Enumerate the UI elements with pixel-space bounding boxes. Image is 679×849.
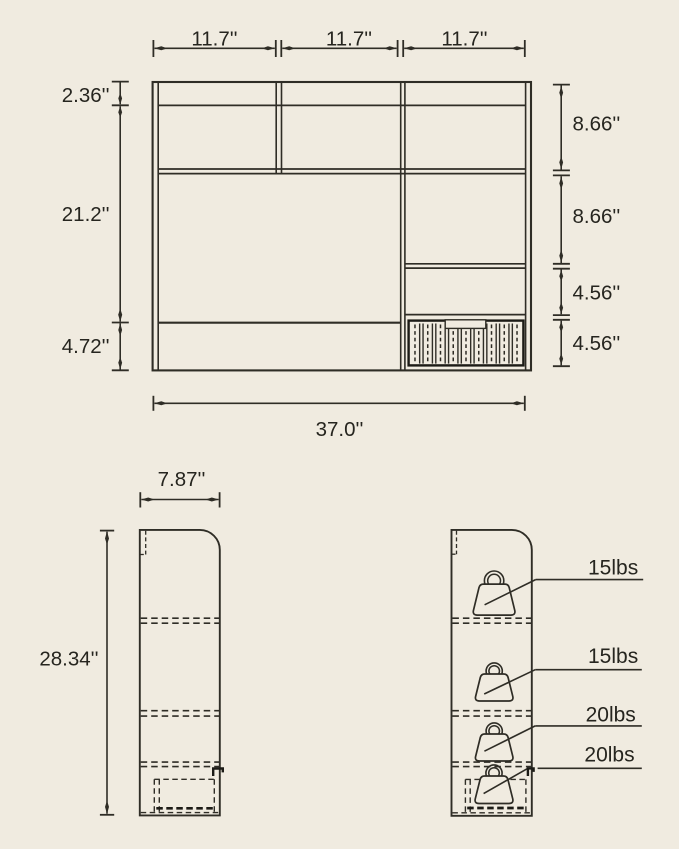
svg-text:2.36'': 2.36'' xyxy=(62,84,110,107)
svg-text:4.56'': 4.56'' xyxy=(573,332,621,355)
svg-text:11.7'': 11.7'' xyxy=(441,27,487,50)
svg-text:28.34'': 28.34'' xyxy=(39,648,98,671)
svg-text:20lbs: 20lbs xyxy=(584,743,634,766)
svg-text:37.0'': 37.0'' xyxy=(316,418,364,441)
svg-text:11.7'': 11.7'' xyxy=(326,27,372,50)
svg-text:11.7'': 11.7'' xyxy=(191,27,237,50)
svg-text:8.66'': 8.66'' xyxy=(573,205,621,228)
svg-text:7.87'': 7.87'' xyxy=(158,468,206,491)
svg-text:8.66'': 8.66'' xyxy=(573,112,621,135)
svg-text:4.56'': 4.56'' xyxy=(573,281,621,304)
svg-text:20lbs: 20lbs xyxy=(586,704,636,727)
svg-text:15lbs: 15lbs xyxy=(588,557,638,580)
svg-text:15lbs: 15lbs xyxy=(588,645,638,668)
svg-text:4.72'': 4.72'' xyxy=(62,335,110,358)
svg-text:21.2'': 21.2'' xyxy=(62,203,110,226)
